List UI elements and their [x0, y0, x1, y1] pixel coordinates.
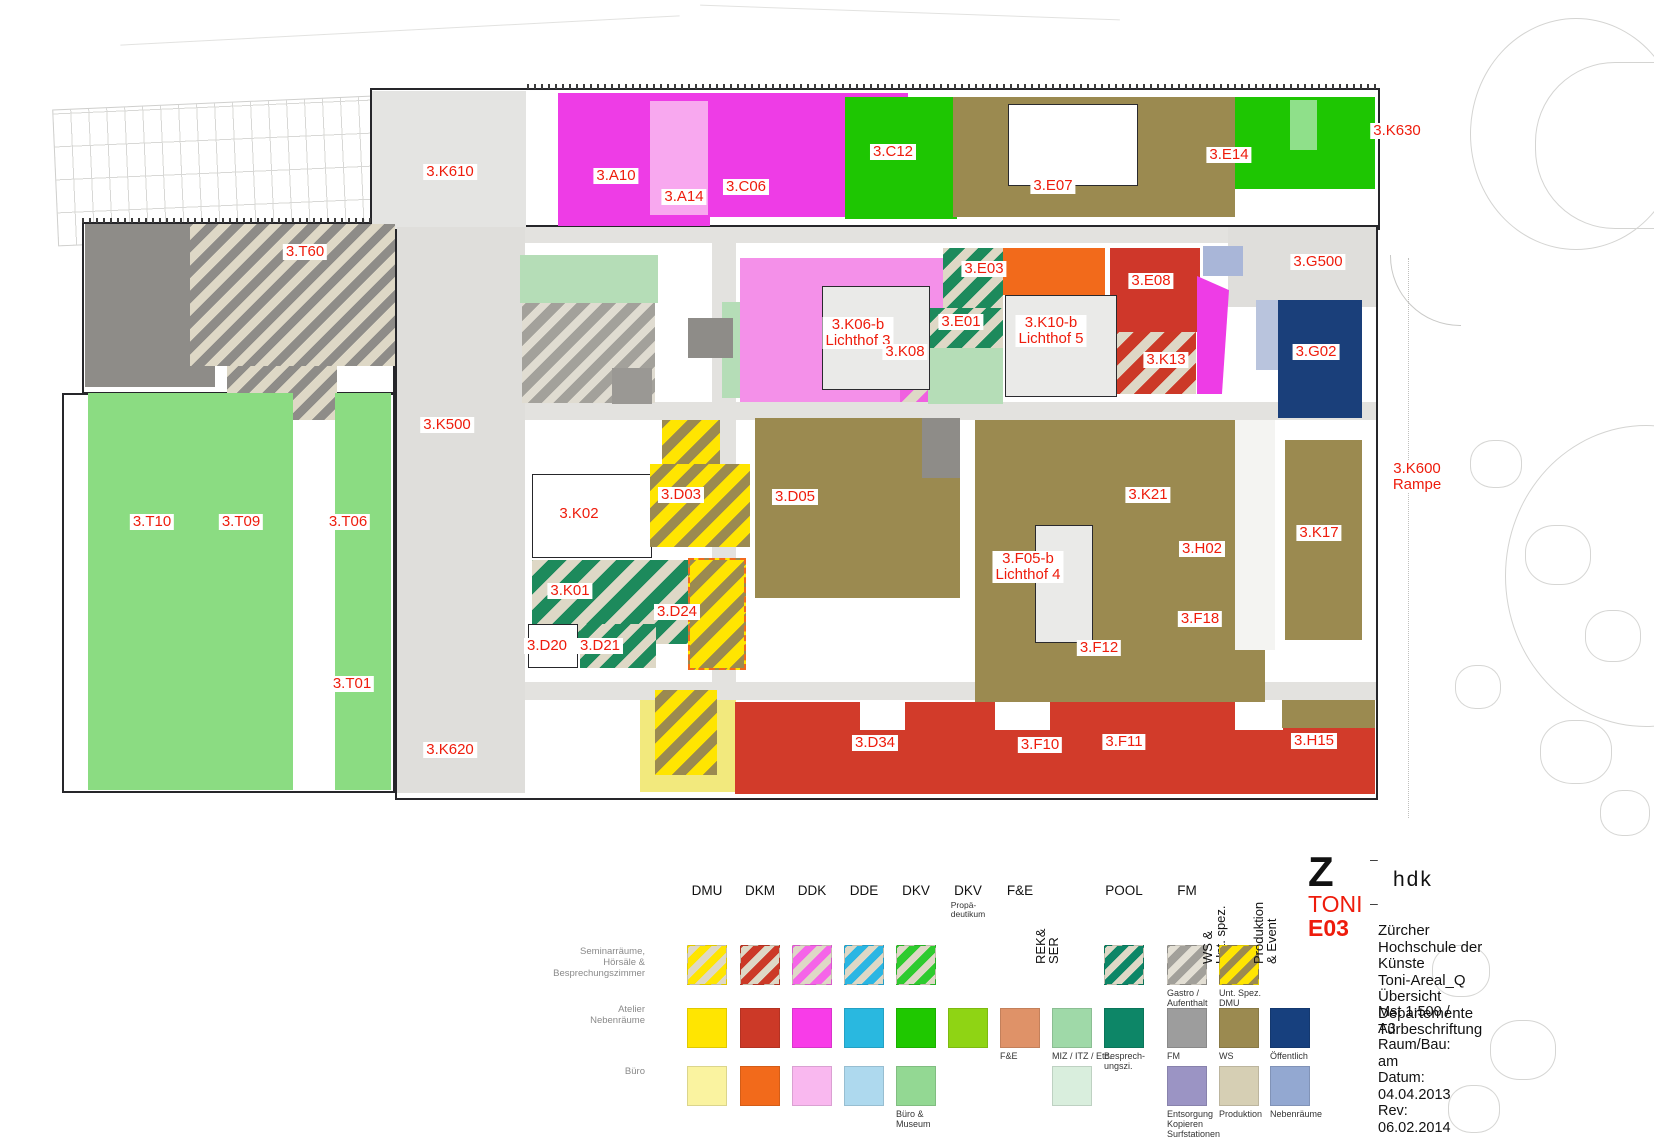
e07-court — [1008, 104, 1138, 186]
room-label-3-k500: 3.K500 — [420, 417, 474, 433]
legend-caption-nebenr-ume: Nebenräume — [1270, 1109, 1334, 1119]
zone-stair-core-2 — [612, 368, 652, 404]
legend-swatch-ws-unt-spez-row3 — [1219, 1066, 1259, 1106]
legend-swatch-ddk-row1 — [792, 945, 832, 985]
room-label-3-h02: 3.H02 — [1179, 541, 1225, 557]
legend-row-label: Büro — [525, 1066, 645, 1077]
legend-swatch-fm-row2 — [1167, 1008, 1207, 1048]
room-label-3-a10: 3.A10 — [593, 168, 638, 184]
room-label-3-e08: 3.E08 — [1128, 273, 1173, 289]
legend-swatch-f-e-row2 — [1000, 1008, 1040, 1048]
zone-stair-core-3 — [922, 418, 960, 478]
zone-corridor-west — [397, 227, 525, 793]
legend-header-dkv: DKV — [954, 884, 982, 898]
legend-swatch-produktion-event-row3 — [1270, 1066, 1310, 1106]
site-tree — [1540, 720, 1612, 784]
room-label-3-k630: 3.K630 — [1370, 123, 1424, 139]
logo-dash-bottom: – — [1370, 896, 1378, 911]
zone-e14-inner — [1290, 100, 1317, 150]
zone-red-band-notch-1 — [860, 702, 905, 730]
legend-swatch-dkv-row3 — [896, 1066, 936, 1106]
room-label-3-k600-rampe: 3.K600 Rampe — [1390, 461, 1444, 493]
legend-swatch-dmu-row3 — [687, 1066, 727, 1106]
legend-caption-unt-spez-dmu: Unt. Spez. DMU — [1219, 988, 1283, 1008]
zone-k610-hall — [372, 91, 526, 229]
legend-header-pool: POOL — [1105, 884, 1143, 898]
legend-swatch-pool-row2 — [1104, 1008, 1144, 1048]
room-label-3-k01: 3.K01 — [547, 583, 592, 599]
title-line: Toni-Areal_Q — [1378, 973, 1482, 990]
room-label-3-f10: 3.F10 — [1018, 737, 1062, 753]
legend-header-dmu: DMU — [692, 884, 723, 898]
room-label-3-d03: 3.D03 — [658, 487, 704, 503]
legend-swatch-rek-ser-row2 — [1052, 1008, 1092, 1048]
room-label-3-f11: 3.F11 — [1102, 734, 1145, 750]
room-label-3-h15: 3.H15 — [1291, 733, 1337, 749]
zone-miz-north — [520, 255, 658, 303]
room-label-3-k10-b-lichthof-5: 3.K10-b Lichthof 5 — [1015, 315, 1086, 347]
legend-swatch-dde-row3 — [844, 1066, 884, 1106]
legend-swatch-dde-row2 — [844, 1008, 884, 1048]
legend-swatch-rek-ser-row3 — [1052, 1066, 1092, 1106]
zone-g02-lobby — [1256, 300, 1278, 370]
zone-olive-strip-se — [1282, 700, 1375, 728]
zone-miz-south — [928, 348, 1003, 404]
legend-caption-b-ro-museum: Büro & Museum — [896, 1109, 960, 1129]
legend-header-rek-ser: REK& SER — [1034, 929, 1060, 964]
site-line — [700, 5, 1120, 21]
legend-header-dkm: DKM — [745, 884, 775, 898]
legend-swatch-dkv-row1 — [896, 945, 936, 985]
room-label-3-e03: 3.E03 — [961, 261, 1006, 277]
room-label-3-d05: 3.D05 — [772, 489, 818, 505]
legend-swatch-ddk-row3 — [792, 1066, 832, 1106]
room-label-3-t60: 3.T60 — [283, 244, 327, 260]
site-tree — [1470, 440, 1522, 488]
room-label-3-f12: 3.F12 — [1077, 640, 1121, 656]
site-tree — [1448, 1085, 1500, 1133]
room-label-3-c06: 3.C06 — [723, 179, 769, 195]
title-line: Zürcher Hochschule der Künste — [1378, 923, 1482, 973]
legend-swatch-dde-row1 — [844, 945, 884, 985]
meta-line: Rev: 06.02.2014 — [1378, 1103, 1451, 1136]
room-label-3-d21: 3.D21 — [577, 638, 623, 654]
room-label-3-k13: 3.K13 — [1143, 352, 1188, 368]
sheet-code: E03 — [1308, 916, 1349, 940]
legend-swatch-dmu-row2 — [687, 1008, 727, 1048]
legend-swatch-ws-unt-spez-row2 — [1219, 1008, 1259, 1048]
lichthof4-court — [1035, 525, 1093, 643]
legend-swatch-dkm-row3 — [740, 1066, 780, 1106]
room-label-3-e14: 3.E14 — [1206, 147, 1251, 163]
room-label-3-g500: 3.G500 — [1290, 254, 1345, 270]
legend-header-dde: DDE — [850, 884, 879, 898]
room-label-3-e01: 3.E01 — [938, 314, 983, 330]
legend-swatch-ddk-row2 — [792, 1008, 832, 1048]
room-label-3-t06: 3.T06 — [326, 514, 370, 530]
site-tree — [1525, 525, 1591, 585]
room-label-3-k08: 3.K08 — [882, 344, 927, 360]
legend-swatch-dmu-row1 — [687, 945, 727, 985]
room-label-3-t09: 3.T09 — [219, 514, 263, 530]
legend-swatch-dkv-row2 — [896, 1008, 936, 1048]
room-label-3-c12: 3.C12 — [870, 144, 916, 160]
legend-header-f-e: F&E — [1007, 884, 1033, 898]
zone-f-gap — [1235, 420, 1275, 650]
legend-header-fm: FM — [1177, 884, 1197, 898]
room-label-3-d24: 3.D24 — [654, 604, 700, 620]
room-label-3-t01: 3.T01 — [330, 676, 374, 692]
room-label-3-e07: 3.E07 — [1030, 178, 1075, 194]
floor-plan-sheet: 3.K6103.A103.A143.C063.C123.E073.E143.K6… — [0, 0, 1654, 1140]
room-label-3-a14: 3.A14 — [661, 189, 706, 205]
site-tree — [1585, 610, 1641, 662]
legend-swatch-fm-row3 — [1167, 1066, 1207, 1106]
legend-row-label: Atelier Nebenräume — [525, 1004, 645, 1026]
room-label-3-k02: 3.K02 — [556, 506, 601, 522]
roof-tick-strip — [82, 218, 395, 223]
room-label-3-k620: 3.K620 — [423, 742, 477, 758]
sheet-meta-lines: Mst 1:500 / A3Raum/Bau: amDatum: 04.04.2… — [1378, 1004, 1451, 1136]
room-label-3-g02: 3.G02 — [1293, 344, 1340, 360]
zone-red-band-notch-3 — [1235, 702, 1283, 730]
room-label-3-k17: 3.K17 — [1296, 525, 1341, 541]
zone-e08 — [1110, 248, 1200, 332]
zhdk-logo-z: Z — [1308, 848, 1332, 896]
room-label-3-k21: 3.K21 — [1125, 487, 1170, 503]
zone-corridor-top — [525, 227, 1230, 243]
legend-header-sub: Propä- deutikum — [951, 901, 986, 919]
roof-tick-strip — [527, 84, 1377, 89]
legend-row-label: Seminarräume, Hörsäle & Besprechungszimm… — [525, 946, 645, 979]
room-label-3-d20: 3.D20 — [524, 638, 570, 654]
zone-stair-core-1 — [688, 318, 733, 358]
zhdk-logo-hdk: hdk — [1393, 868, 1433, 892]
room-label-3-f18: 3.F18 — [1178, 611, 1222, 627]
legend-swatch-pool-row1 — [1104, 945, 1144, 985]
legend-swatch-dkm-row1 — [740, 945, 780, 985]
meta-line: Datum: 04.04.2013 — [1378, 1070, 1451, 1103]
legend-caption-besprech-ungszi: Besprech- ungszi. — [1104, 1051, 1168, 1071]
zone-orange-room — [1003, 248, 1105, 295]
project-code: TONI — [1308, 893, 1363, 916]
zone-hatch-bottom — [655, 690, 717, 775]
zone-e03 — [943, 248, 1003, 308]
legend-swatch-produktion-event-row2 — [1270, 1008, 1310, 1048]
site-stair-arc — [1390, 255, 1461, 326]
zone-d03 — [650, 464, 750, 547]
meta-line: Mst 1:500 / A3 — [1378, 1004, 1451, 1037]
zone-t-green-b — [335, 393, 391, 790]
zone-d03-upper — [662, 420, 720, 464]
room-label-3-t10: 3.T10 — [130, 514, 174, 530]
logo-dash-top: – — [1370, 852, 1378, 867]
legend-header-dkv: DKV — [902, 884, 930, 898]
legend-swatch-dkm-row2 — [740, 1008, 780, 1048]
room-label-3-f05-b-lichthof-4: 3.F05-b Lichthof 4 — [992, 551, 1063, 583]
legend-swatch-dkv-row2 — [948, 1008, 988, 1048]
site-tree — [1490, 1020, 1556, 1080]
room-label-3-d34: 3.D34 — [852, 735, 898, 751]
site-tree — [1600, 790, 1650, 836]
meta-line: Raum/Bau: am — [1378, 1037, 1451, 1070]
zone-t-green-a — [88, 393, 293, 790]
zone-red-band-notch-2 — [995, 702, 1050, 730]
zone-periwinkle-room — [1203, 246, 1243, 276]
site-tree — [1455, 665, 1501, 709]
site-line — [120, 15, 679, 45]
legend-header-produktion-event: Produktion & Event — [1252, 902, 1278, 964]
legend-header-ddk: DDK — [798, 884, 827, 898]
legend-caption-ffentlich: Öffentlich — [1270, 1051, 1334, 1061]
room-label-3-k610: 3.K610 — [423, 164, 477, 180]
site-dotted-path — [1408, 258, 1410, 818]
